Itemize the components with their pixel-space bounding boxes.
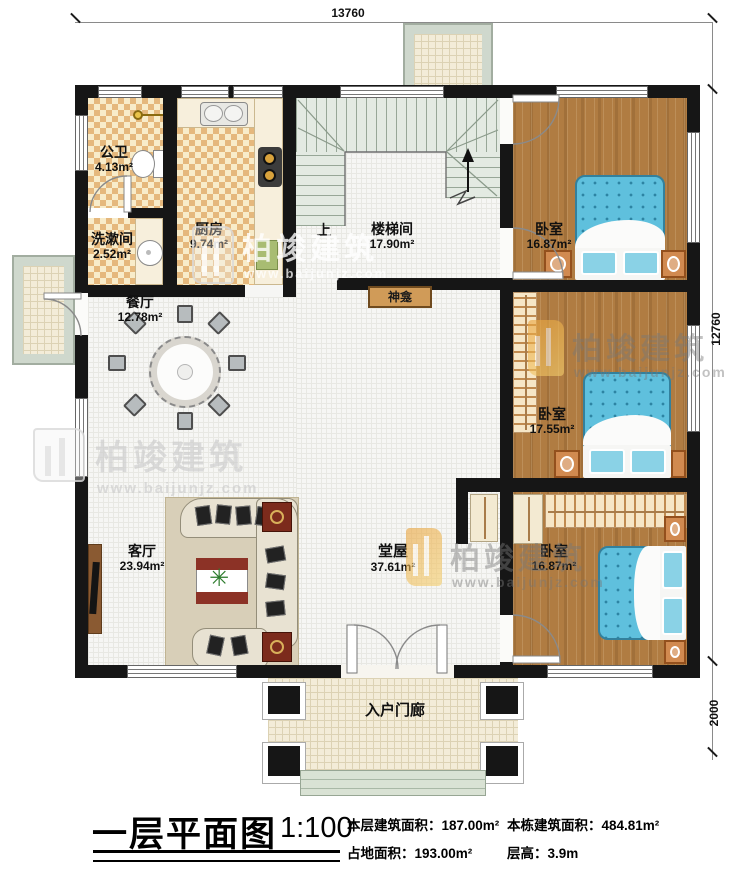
nightstand bbox=[664, 516, 686, 542]
side-door-opening bbox=[75, 293, 88, 335]
nightstand-knob bbox=[550, 256, 566, 272]
floor-plan: 13760 12760 2000 bbox=[0, 0, 750, 873]
kitchen-sink-bowl bbox=[224, 105, 243, 122]
room-label-bedroom3: 卧室 16.87m² bbox=[532, 543, 577, 573]
stat-land-area: 占地面积：193.00m² bbox=[347, 842, 472, 862]
lazy-susan bbox=[177, 364, 193, 380]
cabinet-divider bbox=[528, 497, 530, 541]
window bbox=[340, 86, 444, 98]
room-label-bedroom2: 卧室 17.55m² bbox=[530, 406, 575, 436]
window bbox=[687, 325, 700, 432]
stat-floor-area-value: 187.00m² bbox=[442, 818, 500, 833]
wall-bath-kitchen bbox=[163, 85, 177, 297]
room-label-kitchen: 厨房 9.74m² bbox=[190, 221, 228, 251]
stat-building-area: 本栋建筑面积：484.81m² bbox=[507, 814, 659, 834]
stair-flight-left bbox=[296, 152, 345, 226]
wall-nook-stub bbox=[456, 492, 468, 544]
pillow bbox=[662, 551, 684, 589]
window bbox=[75, 115, 88, 171]
side-table-ring bbox=[270, 640, 284, 654]
wall-hall-bedrooms bbox=[500, 85, 513, 665]
pillow bbox=[589, 449, 625, 474]
stat-building-area-value: 484.81m² bbox=[602, 818, 660, 833]
window bbox=[98, 86, 142, 98]
stat-land-area-value: 193.00m² bbox=[415, 846, 473, 861]
pillow bbox=[623, 251, 659, 275]
stat-floor-area-label: 本层建筑面积： bbox=[347, 818, 442, 833]
stove-burner bbox=[263, 152, 276, 165]
nightstand bbox=[664, 640, 686, 664]
nightstand bbox=[661, 250, 686, 278]
shrine-box: 神龛 bbox=[368, 286, 432, 308]
sofa-bottom bbox=[192, 628, 268, 668]
window bbox=[75, 398, 88, 477]
window bbox=[547, 665, 653, 678]
nightstand bbox=[671, 450, 686, 478]
stat-land-area-label: 占地面积： bbox=[347, 846, 415, 861]
door-opening bbox=[500, 228, 513, 278]
coffee-table-band bbox=[196, 592, 248, 604]
kitchen-opening bbox=[245, 285, 283, 297]
entry-opening bbox=[341, 665, 454, 678]
nightstand-knob bbox=[670, 646, 680, 658]
pillow bbox=[630, 449, 666, 474]
nightstand bbox=[544, 250, 572, 278]
window bbox=[687, 132, 700, 243]
wardrobe-rail bbox=[525, 295, 527, 430]
sofa-cushion bbox=[235, 505, 252, 525]
wall-bed2-bed3 bbox=[456, 478, 687, 492]
window bbox=[127, 665, 237, 678]
porch-steps bbox=[300, 770, 486, 796]
sink-drain bbox=[146, 250, 151, 255]
dimension-width: 13760 bbox=[320, 6, 376, 20]
window bbox=[181, 86, 229, 98]
room-label-hall: 堂屋 37.61m² bbox=[371, 544, 416, 574]
wardrobe-rail bbox=[548, 511, 684, 513]
room-label-living: 客厅 23.94m² bbox=[120, 543, 165, 573]
wall-kitchen-stair bbox=[283, 85, 296, 297]
dimension-line-right bbox=[712, 22, 713, 760]
plant-icon: ✳ bbox=[209, 567, 229, 591]
dimension-porch-depth: 2000 bbox=[707, 691, 721, 735]
room-label-porch: 入户门廊 bbox=[365, 703, 425, 719]
wall-exterior-left bbox=[75, 85, 88, 678]
stair-flight-right bbox=[446, 152, 500, 198]
wall-bed1-bed2 bbox=[513, 280, 687, 292]
side-table bbox=[262, 632, 292, 662]
porch-pillar bbox=[268, 686, 300, 714]
title-underline bbox=[93, 850, 340, 862]
cabinet bbox=[513, 494, 543, 544]
sofa-cushion bbox=[215, 504, 232, 524]
dining-chair bbox=[177, 305, 193, 323]
room-label-dining: 餐厅 12.78m² bbox=[118, 294, 163, 324]
pillow bbox=[581, 251, 617, 275]
pillow bbox=[662, 597, 684, 635]
sofa-cushion bbox=[265, 600, 285, 617]
door-opening bbox=[500, 98, 513, 144]
cabinet-divider bbox=[484, 497, 486, 539]
nightstand-knob bbox=[670, 522, 680, 536]
stat-storey-height: 层高：3.9m bbox=[507, 842, 578, 862]
cutting-board bbox=[256, 240, 278, 270]
side-table bbox=[262, 502, 292, 532]
stair-landing bbox=[296, 98, 500, 152]
window bbox=[233, 86, 283, 98]
porch-pillar bbox=[486, 686, 518, 714]
room-label-bathroom: 公卫 4.13m² bbox=[95, 144, 133, 174]
stair-up-label: 上 bbox=[317, 222, 331, 238]
side-landing-left-floor bbox=[23, 266, 64, 354]
nightstand bbox=[554, 450, 580, 478]
porch-pillar bbox=[486, 746, 518, 776]
dimension-line-top bbox=[75, 22, 712, 23]
cabinet bbox=[470, 494, 498, 542]
shrine-label: 神龛 bbox=[388, 290, 412, 304]
nightstand-knob bbox=[560, 456, 574, 472]
stat-building-area-label: 本栋建筑面积： bbox=[507, 818, 602, 833]
dining-chair bbox=[177, 412, 193, 430]
dimension-height: 12760 bbox=[709, 303, 723, 355]
sofa-cushion bbox=[230, 635, 248, 656]
bed-sheet bbox=[634, 546, 662, 640]
watermark-logo-bar bbox=[59, 438, 65, 476]
side-table-ring bbox=[270, 510, 284, 524]
nightstand-knob bbox=[667, 256, 680, 272]
plan-scale: 1:100 bbox=[280, 812, 353, 845]
roof-annex-top-floor bbox=[414, 34, 482, 88]
door-opening bbox=[500, 615, 513, 662]
watermark-logo-bar bbox=[45, 446, 51, 476]
dining-chair bbox=[228, 355, 246, 371]
dining-chair bbox=[108, 355, 126, 371]
room-label-washroom: 洗漱间 2.52m² bbox=[91, 231, 133, 261]
sofa-cushion bbox=[265, 573, 286, 590]
window bbox=[556, 86, 648, 98]
kitchen-sink-bowl bbox=[204, 105, 223, 122]
porch-pillar bbox=[268, 746, 300, 776]
sofa-cushion bbox=[195, 505, 212, 526]
room-label-stairwell: 楼梯间 17.90m² bbox=[370, 221, 415, 251]
toilet-icon bbox=[131, 150, 155, 178]
stat-storey-height-label: 层高： bbox=[507, 846, 548, 861]
stove-burner bbox=[263, 169, 276, 182]
wall-bath-bottom bbox=[128, 208, 163, 218]
stat-floor-area: 本层建筑面积：187.00m² bbox=[347, 814, 499, 834]
stat-storey-height-value: 3.9m bbox=[548, 846, 579, 861]
room-label-bedroom1: 卧室 16.87m² bbox=[527, 221, 572, 251]
